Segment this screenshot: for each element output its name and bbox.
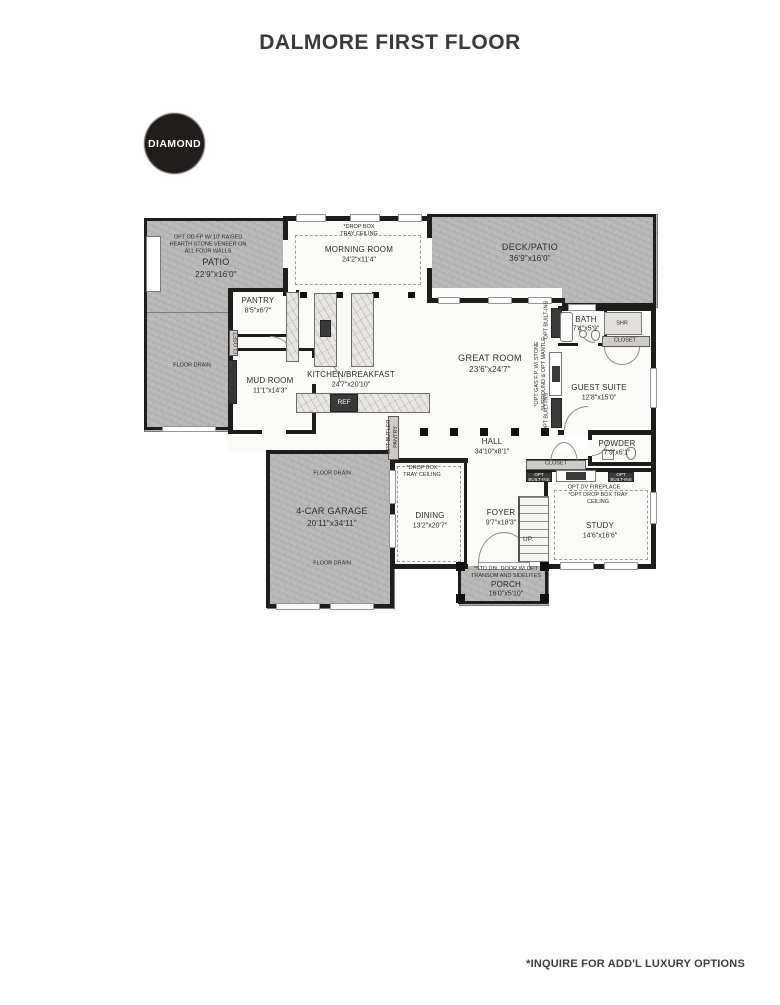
door-opening bbox=[262, 430, 286, 434]
porch-post bbox=[456, 594, 465, 603]
hall-label: HALL bbox=[482, 437, 503, 447]
wall bbox=[458, 601, 548, 604]
dining-dims: 13'2"x20'7" bbox=[413, 521, 448, 530]
patio-note: OPT OD FP W/ 10' RAISED HEARTH STONE VEN… bbox=[158, 234, 258, 255]
hall-dims: 34'10"x8'1" bbox=[475, 447, 510, 456]
wall bbox=[390, 458, 468, 463]
door-opening bbox=[427, 238, 432, 268]
wall bbox=[588, 462, 656, 466]
floor-drain-label: FLOOR DRAIN bbox=[313, 560, 351, 567]
door-opening bbox=[283, 240, 288, 268]
window bbox=[604, 562, 638, 570]
column-post bbox=[420, 428, 428, 436]
deck-patio-label: DECK/PATIO bbox=[502, 242, 558, 254]
study-closet-label: CLOSET bbox=[545, 460, 567, 467]
stairs bbox=[518, 496, 549, 562]
foyer-dims: 9'7"x18'3" bbox=[486, 518, 517, 527]
page-title: DALMORE FIRST FLOOR bbox=[0, 31, 780, 55]
patio-label: PATIO bbox=[202, 257, 229, 269]
window bbox=[296, 214, 326, 222]
bathtub bbox=[560, 312, 573, 342]
mud-room-dims: 11'1"x14'3" bbox=[253, 386, 287, 395]
garage-door bbox=[330, 603, 374, 610]
study-tray-note: *OPT DROP BOX TRAY CEILING bbox=[558, 492, 638, 506]
garage-label: 4-CAR GARAGE bbox=[277, 506, 387, 518]
great-room-dims: 23'6"x24'7" bbox=[469, 365, 511, 375]
foyer-label: FOYER bbox=[487, 508, 516, 518]
patio-side-area bbox=[144, 312, 234, 432]
window bbox=[650, 492, 657, 524]
window bbox=[438, 297, 460, 304]
built-ins-label: OPT BUILT-INS bbox=[544, 393, 551, 432]
window bbox=[389, 514, 396, 548]
column-post bbox=[480, 428, 488, 436]
dining-label: DINING bbox=[415, 511, 444, 521]
wall bbox=[144, 218, 284, 221]
firebox bbox=[566, 472, 586, 480]
patio-dims: 22'9"x16'0" bbox=[195, 270, 237, 280]
bath-closet-label: CLOSET bbox=[614, 337, 636, 344]
morning-room-label: MORNING ROOM bbox=[299, 245, 419, 255]
wall bbox=[266, 450, 394, 454]
column-post bbox=[450, 428, 458, 436]
window bbox=[350, 214, 380, 222]
mud-closet-label: CLOSET bbox=[234, 332, 241, 354]
built-ins-label: OPT BUILT-INS bbox=[610, 472, 631, 482]
great-room-label: GREAT ROOM bbox=[435, 353, 545, 365]
floor-drain-label: FLOOR DRAIN bbox=[173, 362, 211, 369]
window bbox=[398, 214, 422, 222]
morning-room-note: *DROP BOX TRAY CEILING bbox=[319, 224, 399, 238]
window bbox=[560, 562, 594, 570]
kitchen-label: KITCHEN/BREAKFAST bbox=[286, 370, 416, 380]
pantry-label: PANTRY bbox=[242, 296, 275, 306]
column-post bbox=[336, 292, 343, 298]
floor-drain-label: FLOOR DRAIN bbox=[313, 470, 351, 477]
wall bbox=[464, 461, 467, 565]
column-post bbox=[511, 428, 519, 436]
porch-note: *STD DBL DOOR W/ OPT TRANSOM AND SIDELIT… bbox=[461, 566, 551, 580]
kitchen-sink bbox=[320, 320, 331, 337]
pantry-dims: 8'5"x6'7" bbox=[245, 306, 272, 315]
garage-dims: 20'11"x34'11" bbox=[307, 519, 357, 529]
guest-suite-dims: 12'8"x15'0" bbox=[582, 393, 617, 402]
luxury-options-footnote: *INQUIRE FOR ADD'L LUXURY OPTIONS bbox=[526, 958, 745, 970]
dining-note: *DROP BOX TRAY CEILING bbox=[392, 465, 452, 479]
column-post bbox=[300, 292, 307, 298]
garage-door bbox=[276, 603, 320, 610]
deck-patio-dims: 36'9"x16'0" bbox=[509, 254, 551, 264]
powder-dims: 7'9"x6'1" bbox=[604, 448, 631, 457]
window bbox=[650, 368, 657, 408]
wall bbox=[427, 214, 656, 217]
morning-room-dims: 24'2"x11'4" bbox=[342, 255, 376, 264]
study-fireplace-note: OPT DV FIREPLACE bbox=[554, 484, 634, 491]
diamond-badge-label: DIAMOND bbox=[148, 138, 201, 150]
butler-pantry-label: OPT BUTLER PANTRY bbox=[386, 420, 400, 454]
kitchen-counter bbox=[286, 292, 299, 362]
window bbox=[162, 426, 216, 432]
door-opening bbox=[564, 430, 588, 435]
study-label: STUDY bbox=[586, 521, 614, 531]
kitchen-island bbox=[351, 293, 374, 367]
floorplan-page: DALMORE FIRST FLOOR DIAMOND bbox=[0, 0, 780, 1005]
door-opening bbox=[578, 343, 598, 346]
wall bbox=[230, 288, 288, 292]
built-ins-label: OPT BUILT-INS bbox=[231, 365, 238, 404]
kitchen-dims: 24'7"x20'10" bbox=[332, 380, 370, 389]
column-post bbox=[408, 292, 415, 298]
firebox bbox=[552, 366, 560, 382]
stairs-up-label: UP. bbox=[523, 536, 533, 544]
porch-post bbox=[540, 594, 549, 603]
guest-suite-label: GUEST SUITE bbox=[554, 383, 644, 393]
built-ins-cabinet bbox=[551, 398, 562, 428]
wall bbox=[653, 214, 656, 308]
porch-dims: 16'0"x5'10" bbox=[489, 589, 524, 598]
window bbox=[488, 297, 512, 304]
shower-label: SHR bbox=[616, 320, 628, 327]
study-dims: 14'6"x16'6" bbox=[583, 531, 618, 540]
refrigerator-label: REF bbox=[338, 399, 351, 407]
wall bbox=[266, 450, 270, 608]
diamond-badge: DIAMOND bbox=[144, 113, 205, 174]
bath-dims: 7'4"x5'9" bbox=[573, 324, 600, 333]
built-ins-label: OPT BUILT-INS bbox=[528, 472, 549, 482]
built-ins-label: OPT BUILT-INS bbox=[544, 301, 551, 340]
kitchen-counter bbox=[296, 393, 430, 413]
window bbox=[568, 304, 596, 311]
